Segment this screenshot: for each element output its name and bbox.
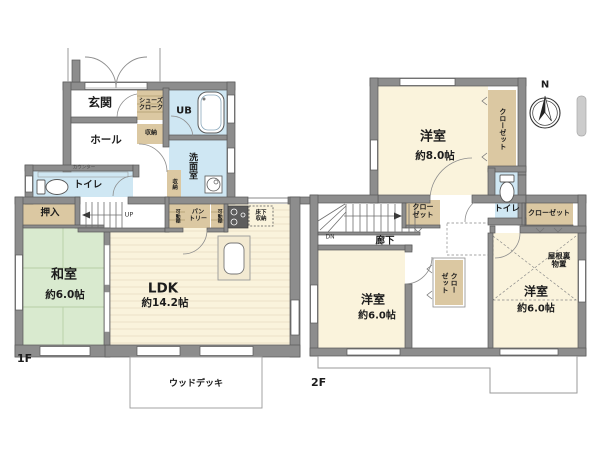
wood-deck — [130, 357, 262, 408]
room-storage-b — [167, 170, 181, 197]
shelf-left — [169, 204, 185, 228]
floor-storage-hatch — [249, 206, 273, 226]
toilet-icon-1f — [37, 180, 45, 194]
closet-mid — [435, 260, 463, 305]
attic-access — [447, 223, 493, 255]
scale-bar — [577, 96, 586, 136]
washer-icon — [205, 176, 222, 193]
room-8jo — [378, 86, 488, 195]
toilet-icon-2f — [500, 175, 514, 182]
stairs-down-arrow — [394, 213, 402, 220]
closet-top-right — [525, 203, 573, 225]
stairs-2f — [318, 204, 415, 232]
room-washitsu — [23, 228, 104, 345]
floorplan-drawing — [0, 0, 600, 450]
stairs-1f — [86, 202, 122, 228]
compass-icon — [530, 96, 560, 128]
floorplan-image: 玄関 シューズ クローク UB ホール 収納 洗面室 収納 カウンター トイレ … — [0, 0, 600, 450]
closet-right — [488, 90, 516, 166]
room-6jo-right — [493, 233, 578, 348]
floor2-rooms — [318, 86, 578, 348]
room-pantry — [185, 204, 210, 228]
sink-icon — [224, 243, 244, 274]
room-storage-a — [137, 124, 165, 144]
roof-outline — [318, 356, 577, 393]
room-oshiire — [23, 204, 75, 225]
room-6jo-left — [318, 250, 405, 348]
closet-stairs — [406, 200, 440, 225]
stove-icon — [228, 206, 248, 228]
